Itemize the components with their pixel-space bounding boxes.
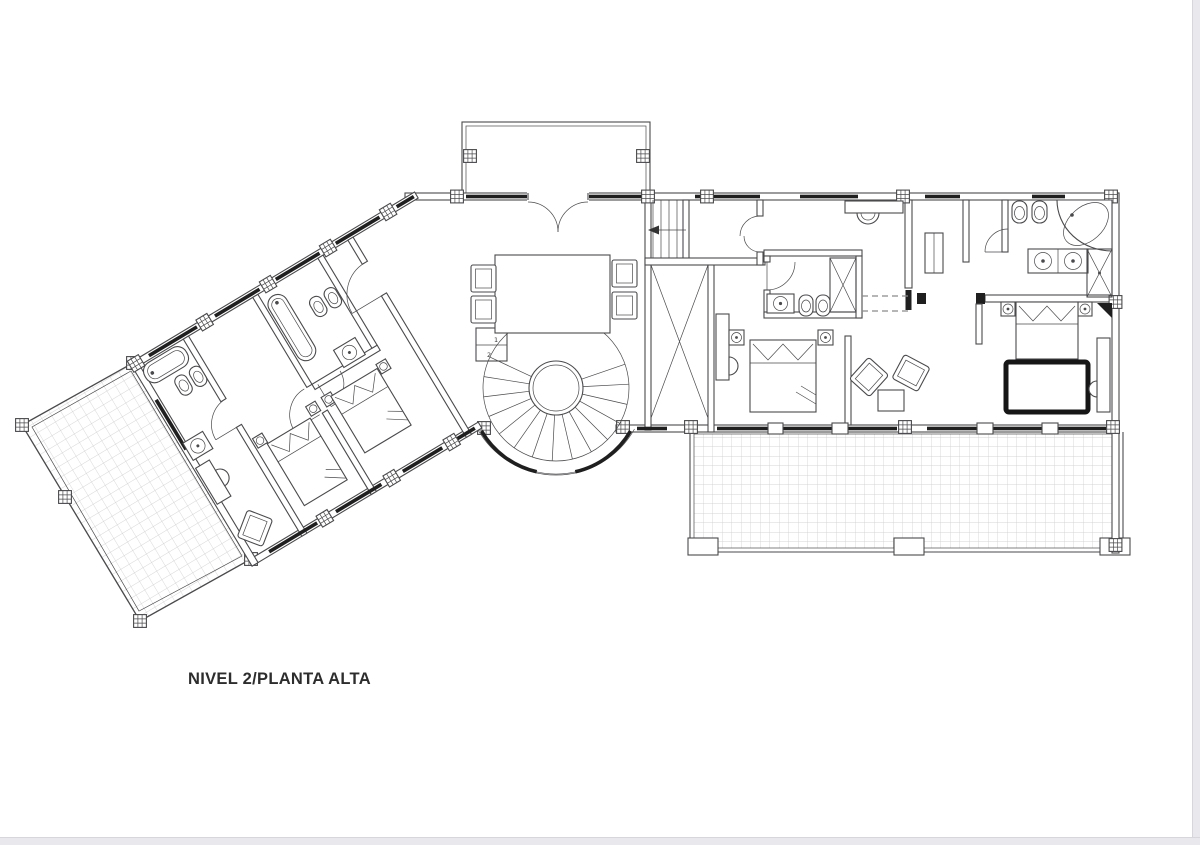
bed xyxy=(1016,302,1078,359)
step-number-2: 2 xyxy=(487,351,491,359)
balcony-railing xyxy=(482,431,537,472)
middle-bathroom xyxy=(767,258,908,316)
lounge-seating xyxy=(849,354,930,411)
wall-shelf xyxy=(1097,338,1110,412)
page-edge-right xyxy=(1192,0,1200,845)
desk xyxy=(716,314,729,380)
plan-title: NIVEL 2/PLANTA ALTA xyxy=(188,670,371,688)
corner-bathtub xyxy=(1057,200,1112,251)
straight-stair xyxy=(648,200,686,258)
master-bathroom xyxy=(1012,194,1117,297)
terrace-column xyxy=(894,538,924,555)
bed xyxy=(750,340,816,412)
floor-plan-drawing: 1 2 xyxy=(0,0,1200,845)
rug xyxy=(1006,362,1088,412)
scanned-floorplan-page: 1 2 xyxy=(0,0,1200,845)
terrace-column xyxy=(688,538,718,555)
top-balcony xyxy=(462,122,650,197)
desk-chair xyxy=(729,357,738,375)
walk-in-closet xyxy=(925,233,943,273)
void-x xyxy=(651,265,708,418)
middle-bedroom xyxy=(716,314,833,412)
page-edge-bottom xyxy=(0,837,1200,845)
wing-middle-bathroom xyxy=(264,266,372,385)
hall-table-group xyxy=(471,255,637,333)
spiral-staircase: 1 2 xyxy=(476,315,635,475)
bidet xyxy=(816,295,830,316)
right-terrace xyxy=(688,432,1130,555)
right-bedroom xyxy=(1001,302,1112,412)
corridor-desk xyxy=(845,201,903,224)
side-table xyxy=(878,390,904,411)
step-number-1: 1 xyxy=(494,336,498,344)
wing-bedroom-1 xyxy=(252,401,358,511)
hall-table xyxy=(495,255,610,333)
toilet xyxy=(799,295,813,316)
